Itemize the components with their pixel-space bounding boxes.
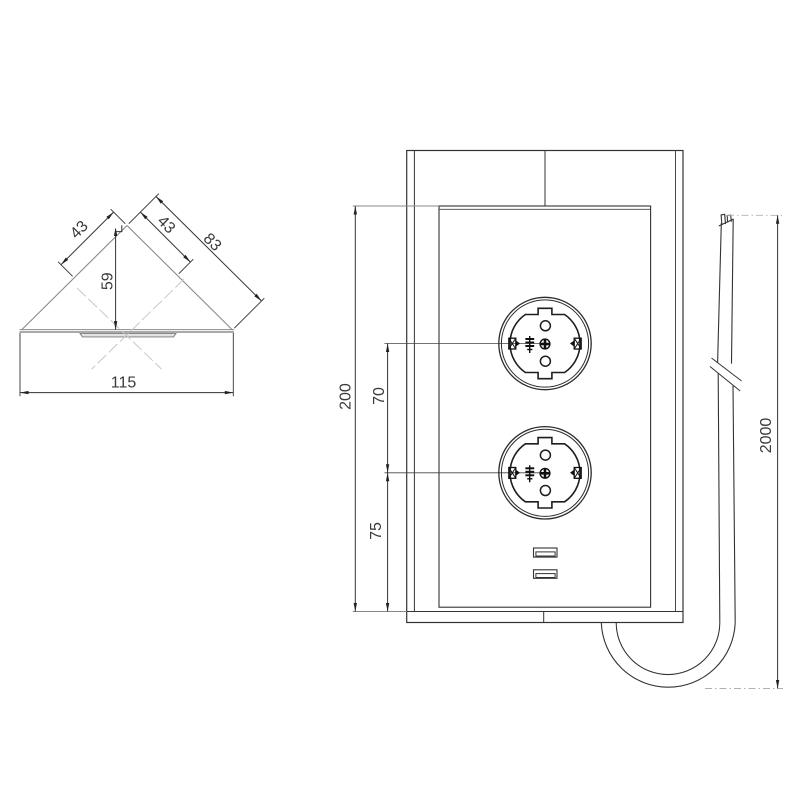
svg-text:70: 70: [371, 387, 388, 405]
svg-text:75: 75: [368, 522, 385, 540]
svg-text:115: 115: [111, 375, 137, 392]
svg-text:200: 200: [338, 383, 355, 410]
svg-text:2000: 2000: [758, 418, 775, 454]
svg-text:59: 59: [99, 272, 116, 290]
